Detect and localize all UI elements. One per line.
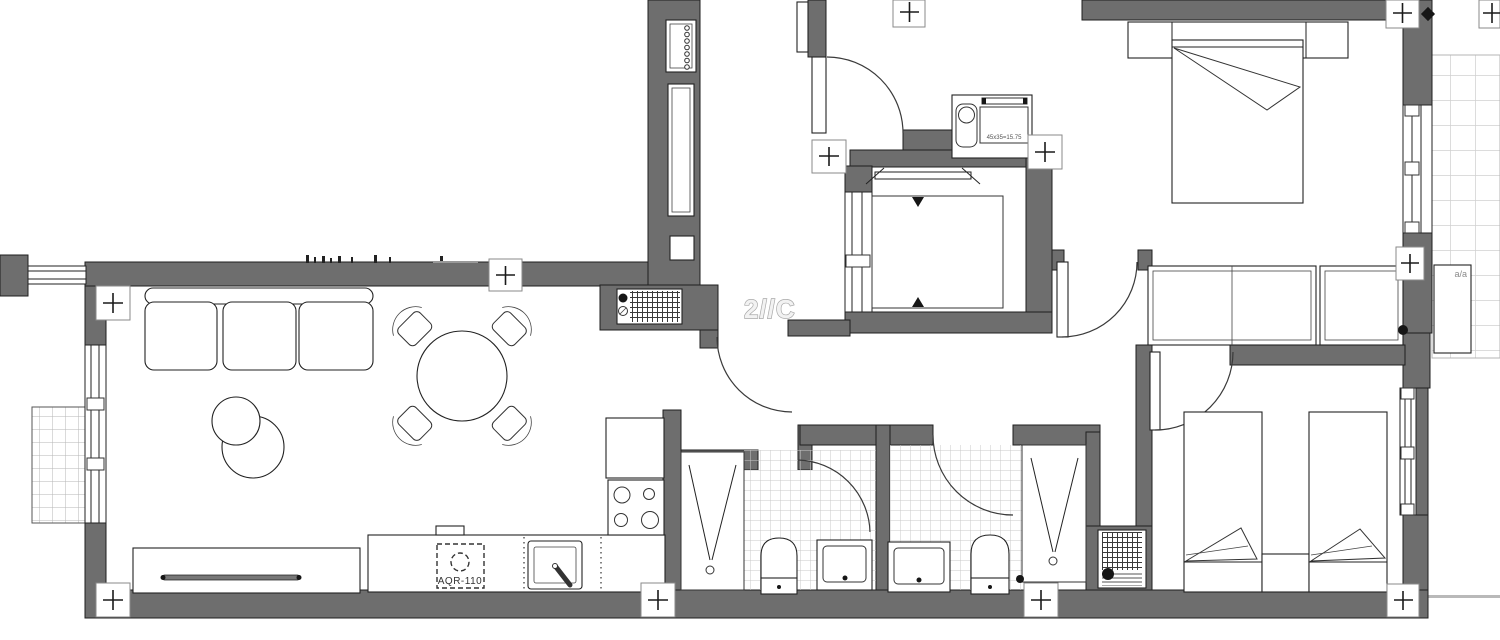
bath1-shower-drain (706, 566, 714, 574)
sofa-seat-1 (145, 302, 217, 370)
bathroom-2 (888, 435, 1086, 594)
left-window-exterior (32, 407, 86, 523)
sideboard (133, 548, 360, 593)
bedroom2-door-leaf (1150, 352, 1160, 430)
living-window-top (28, 266, 86, 284)
plus-marker (893, 0, 925, 27)
heater-hatch (1102, 532, 1142, 570)
plus-marker (641, 583, 675, 617)
wall-right-lower (1403, 515, 1428, 590)
heater-valve (1102, 568, 1114, 580)
shaft-dimension-label: 45x35=15.75 (987, 135, 1023, 141)
entry-door-arc (827, 57, 903, 133)
wall-right-beside-window (1416, 388, 1428, 515)
bedroom-2 (1150, 352, 1387, 592)
corridor-door-arc (717, 337, 792, 412)
entry-niche: 45x35=15.75 (952, 95, 1032, 158)
bath2-sink (888, 542, 950, 592)
wall-right-bed2-top (1403, 333, 1430, 388)
shaft-arrow-up (912, 297, 924, 307)
bath2-toilet (971, 535, 1009, 594)
wall-entry-left (808, 0, 826, 57)
floor-plan-drawing: a/a (0, 0, 1500, 640)
kitchen-sink (528, 541, 582, 589)
ac-unit-label: a/a (1454, 269, 1467, 279)
plus-marker (96, 583, 130, 617)
kitchen-counter (368, 535, 665, 592)
bath1-sink (817, 540, 872, 590)
coat-hooks (685, 26, 690, 70)
plus-marker (1386, 0, 1419, 28)
bedroom1-window (1403, 105, 1432, 233)
floor-plan-page: a/a (0, 0, 1500, 640)
shelf-bar (982, 98, 1027, 104)
wall-topleft-block (0, 255, 28, 296)
water-heater (1098, 530, 1146, 588)
bedroom2-window (1400, 388, 1416, 515)
wall-bottom (85, 590, 1428, 618)
wall-living-top (85, 262, 650, 286)
terrace-edge-line (1428, 595, 1500, 598)
wardrobes (1148, 266, 1403, 345)
plus-marker (812, 140, 846, 173)
wall-top-wing (1082, 0, 1405, 20)
hob (608, 480, 664, 535)
bath2-shower-drain (1049, 557, 1057, 565)
fridge (606, 418, 664, 478)
right-terrace: a/a (1428, 55, 1500, 598)
plus-marker (1396, 247, 1424, 280)
exterior-grid-box (32, 407, 86, 523)
counter-notch (436, 526, 464, 535)
plus-marker (1028, 135, 1062, 169)
hall-small-niche (670, 236, 694, 260)
wall-kitchen-bath (663, 410, 681, 590)
living-window-left (85, 345, 106, 523)
coat-rack-niche (666, 20, 696, 72)
appliance-label: AQR-110 (438, 576, 482, 587)
single-bed-2 (1309, 412, 1387, 592)
wall-bed2-top (1230, 345, 1405, 365)
survey-dot (1398, 325, 1408, 335)
dining-set (385, 299, 538, 452)
wall-corridor-door (788, 320, 850, 336)
wall-corridor-stub (700, 330, 718, 348)
duct-vent (617, 289, 682, 324)
dimension-line (875, 172, 971, 179)
wall-shaft-right (1026, 150, 1052, 333)
double-bed (1172, 40, 1303, 203)
wall-bathB-right (1086, 432, 1100, 528)
wall-shaft-bottom (845, 312, 1052, 333)
entry-wall-slot (797, 2, 808, 52)
shaft-void (872, 196, 1003, 308)
shaft-interior (866, 168, 1003, 308)
duct-hatch (630, 291, 680, 322)
bedroom1-door-arc (1062, 262, 1137, 337)
plus-marker (96, 286, 130, 320)
water-column-circle (959, 107, 975, 123)
entry-door-leaf (812, 57, 826, 133)
sofa-seat-3 (299, 302, 373, 370)
plus-marker (1479, 0, 1500, 28)
plus-marker (1387, 584, 1419, 617)
bath1-toilet (761, 538, 797, 594)
bedroom1-door-leaf (1057, 262, 1068, 337)
duct-circle-filled (619, 294, 628, 303)
bathroom-1 (681, 450, 876, 594)
shaft-arrow-down (912, 197, 924, 207)
bedroom2-nightstand (1262, 554, 1309, 592)
sideboard-handle (162, 575, 300, 580)
plus-marker (1024, 583, 1058, 617)
dining-table (417, 331, 507, 421)
wall-bathB-top-left (800, 425, 933, 445)
single-bed-1 (1184, 412, 1262, 592)
wardrobe-2 (1320, 266, 1403, 345)
survey-dot (1016, 575, 1024, 583)
shaft-window (845, 192, 872, 312)
unit-label: 2//C (744, 294, 796, 324)
plus-marker (489, 259, 522, 291)
coffee-table-small (212, 397, 260, 445)
wall-shaft-window-stub (845, 166, 872, 192)
sofa-seat-2 (223, 302, 296, 370)
